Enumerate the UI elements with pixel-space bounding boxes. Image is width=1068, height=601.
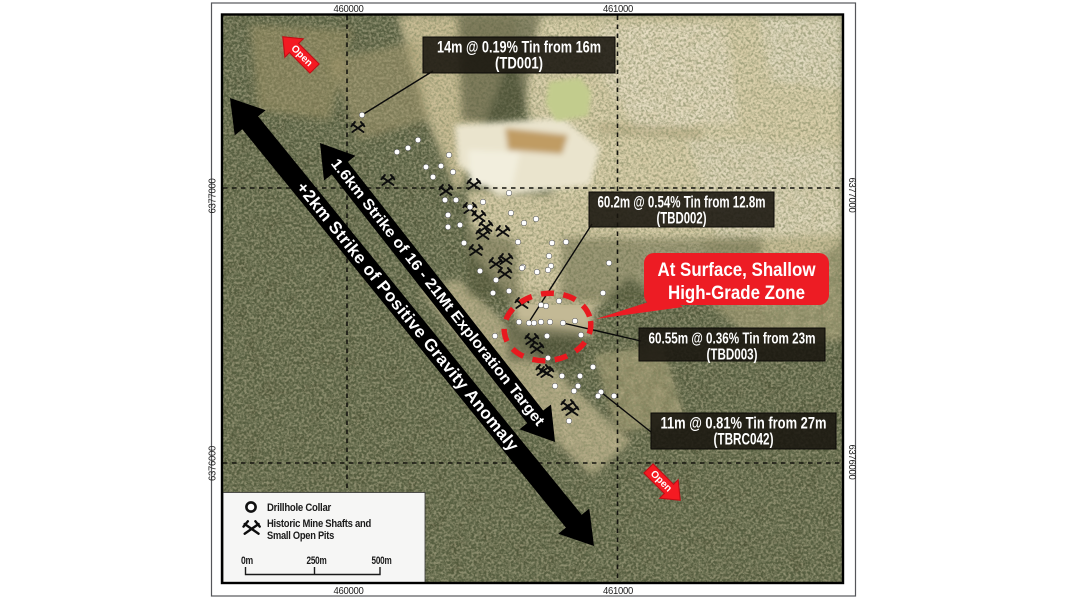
svg-text:(TBD003): (TBD003) xyxy=(707,347,758,364)
svg-text:(TBD002): (TBD002) xyxy=(657,210,707,228)
svg-text:6376000: 6376000 xyxy=(208,445,219,481)
svg-text:Small Open Pits: Small Open Pits xyxy=(267,530,334,542)
svg-text:60.55m @ 0.36% Tin from 23m: 60.55m @ 0.36% Tin from 23m xyxy=(649,331,816,348)
svg-text:Drillhole Collar: Drillhole Collar xyxy=(267,502,332,514)
svg-text:250m: 250m xyxy=(307,555,327,567)
svg-text:461000: 461000 xyxy=(603,586,634,597)
svg-text:High-Grade Zone: High-Grade Zone xyxy=(668,283,805,304)
svg-text:500m: 500m xyxy=(372,555,392,567)
svg-text:(TD001): (TD001) xyxy=(495,55,543,73)
svg-text:6377000: 6377000 xyxy=(846,178,857,214)
svg-text:0m: 0m xyxy=(241,555,253,567)
svg-text:6377000: 6377000 xyxy=(208,178,219,214)
svg-text:Historic Mine Shafts and: Historic Mine Shafts and xyxy=(267,518,371,530)
svg-text:At Surface, Shallow: At Surface, Shallow xyxy=(658,260,816,281)
svg-text:460000: 460000 xyxy=(334,586,365,597)
svg-text:(TBRC042): (TBRC042) xyxy=(714,431,774,449)
svg-text:6376000: 6376000 xyxy=(846,445,857,481)
